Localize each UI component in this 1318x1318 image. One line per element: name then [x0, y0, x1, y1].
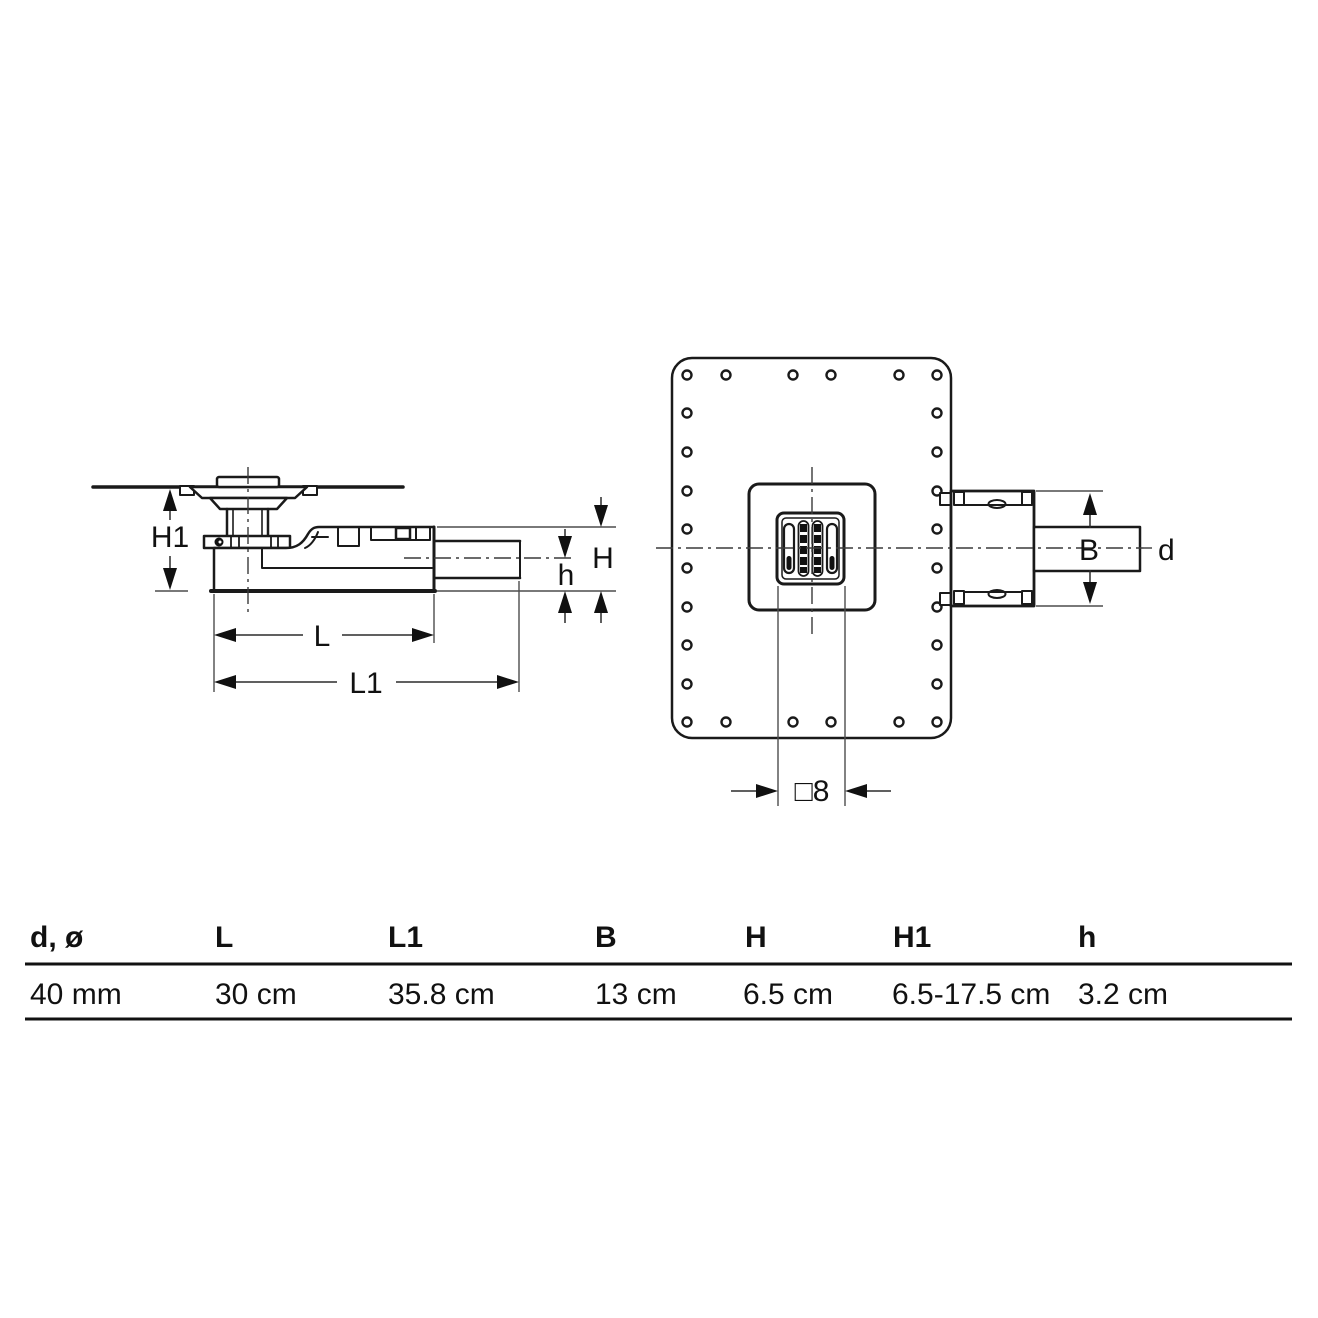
table-value-L1: 35.8 cm [388, 978, 495, 1011]
table-header-L1: L1 [388, 921, 423, 954]
outlet-pipe-side [434, 541, 520, 578]
dimension-label-h: h [558, 559, 575, 592]
table-value-L: 30 cm [215, 978, 297, 1011]
dimension-label-d: d [1158, 534, 1175, 567]
dimension-label-H1: H1 [151, 521, 189, 554]
dimension-L: L [214, 594, 434, 692]
dimension-H: H [437, 497, 616, 623]
table-header-H1: H1 [893, 921, 931, 954]
table-value-h: 3.2 cm [1078, 978, 1168, 1011]
dimension-label-L: L [314, 620, 331, 653]
table-header-h: h [1078, 921, 1096, 954]
dimension-label-B: B [1079, 534, 1099, 567]
dimension-H1: H1 [151, 489, 189, 591]
side-view: H1 H h L [93, 467, 616, 700]
dimension-h: h [558, 529, 575, 623]
table-value-B: 13 cm [595, 978, 677, 1011]
top-view: B d □8 [656, 358, 1175, 808]
technical-drawing-page: H1 H h L [0, 0, 1318, 1318]
table-header-d: d, ø [30, 921, 84, 954]
dimension-table: d, ø L L1 B H H1 h 40 mm 30 cm 35.8 cm 1… [25, 921, 1292, 1019]
table-value-d: 40 mm [30, 978, 122, 1011]
dimension-label-H: H [592, 542, 614, 575]
clamp-ring [204, 536, 290, 548]
dimension-label-grate-square: □8 [795, 775, 830, 808]
dimension-L1: L1 [214, 581, 519, 700]
drain-dimension-drawing: H1 H h L [0, 0, 1318, 1318]
table-value-H1: 6.5-17.5 cm [892, 978, 1050, 1011]
table-header-B: B [595, 921, 617, 954]
dimension-label-L1: L1 [349, 667, 382, 700]
table-value-H: 6.5 cm [743, 978, 833, 1011]
table-header-H: H [745, 921, 767, 954]
table-header-L: L [215, 921, 233, 954]
